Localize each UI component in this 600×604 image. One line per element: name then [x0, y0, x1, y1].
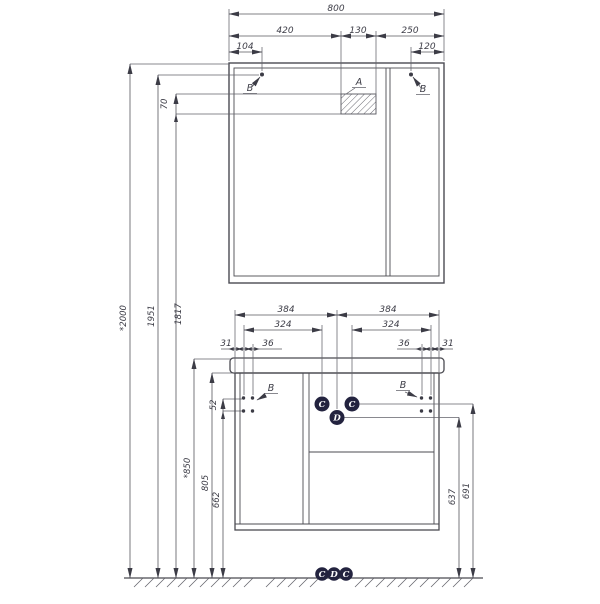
dim-height-overall: *2000 [119, 305, 129, 331]
floor-badges: C D C [315, 567, 353, 581]
dim-height-c-row: 691 [462, 483, 472, 499]
svg-text:C: C [343, 570, 350, 580]
vanity-dimensions: 384 384 324 324 31 36 36 31 [220, 305, 453, 409]
dim-vanity-gap-right: 36 [398, 339, 410, 349]
mirror-cabinet [176, 63, 444, 283]
mirror-cabinet-inner-frame [234, 68, 439, 276]
dim-vanity-span-left: 324 [274, 320, 291, 330]
mirror-dimensions: 800 420 130 250 104 120 [229, 4, 444, 94]
height-dimensions: *2000 1951 70 1817 *850 805 52 662 [119, 64, 259, 578]
dim-vanity-half-right: 384 [379, 305, 396, 315]
mirror-cabinet-outline [229, 63, 444, 283]
mirror-mounting-hole-right [409, 73, 413, 77]
dim-height-lower-holes: 662 [212, 492, 222, 508]
dim-mirror-width-niche: 130 [349, 26, 366, 36]
floor-ground-line [124, 578, 483, 587]
callout-b-mirror-left: B [247, 83, 254, 94]
svg-text:C: C [319, 400, 326, 410]
dim-mirror-hole-offset-left: 104 [236, 42, 253, 52]
dim-hole-row-gap: 52 [209, 400, 219, 411]
dim-height-niche-bottom: 1817 [174, 303, 184, 325]
callout-b-vanity-left: B [268, 383, 275, 394]
dim-height-d-row: 637 [448, 488, 458, 505]
dim-niche-height: 70 [160, 99, 170, 110]
dim-mirror-width-right: 250 [401, 26, 418, 36]
callout-b-vanity-right: B [400, 380, 407, 391]
mirror-callouts: B B A [243, 77, 430, 95]
dim-vanity-edge-right: 31 [442, 339, 453, 349]
dim-vanity-span-right: 324 [382, 320, 399, 330]
svg-text:D: D [332, 414, 341, 424]
callout-b-mirror-right: B [420, 84, 427, 95]
svg-text:C: C [349, 400, 356, 410]
floor-hatching [134, 578, 473, 587]
dim-mirror-width-total: 800 [327, 4, 344, 14]
dim-mirror-hole-offset-right: 120 [418, 42, 435, 52]
furniture-installation-drawing: B B A 800 420 130 250 104 120 [0, 0, 600, 600]
svg-text:C: C [319, 570, 326, 580]
dim-height-mirror-holes: 1951 [147, 305, 157, 327]
dim-vanity-edge-left: 31 [220, 339, 231, 349]
dim-height-body-top: 805 [201, 475, 211, 491]
vanity-callouts: B B C C D [257, 380, 473, 425]
dim-height-countertop: *850 [183, 458, 193, 478]
dim-vanity-gap-left: 36 [262, 339, 274, 349]
callout-a-niche: A [355, 77, 363, 88]
right-height-dimensions: 637 691 [448, 404, 473, 578]
dim-mirror-width-left: 420 [276, 26, 293, 36]
svg-text:D: D [329, 570, 338, 580]
mirror-mounting-hole-left [260, 73, 264, 77]
niche-a-hatched-area [341, 94, 376, 114]
technical-drawing-page: B B A 800 420 130 250 104 120 [0, 0, 600, 600]
dim-vanity-half-left: 384 [277, 305, 294, 315]
